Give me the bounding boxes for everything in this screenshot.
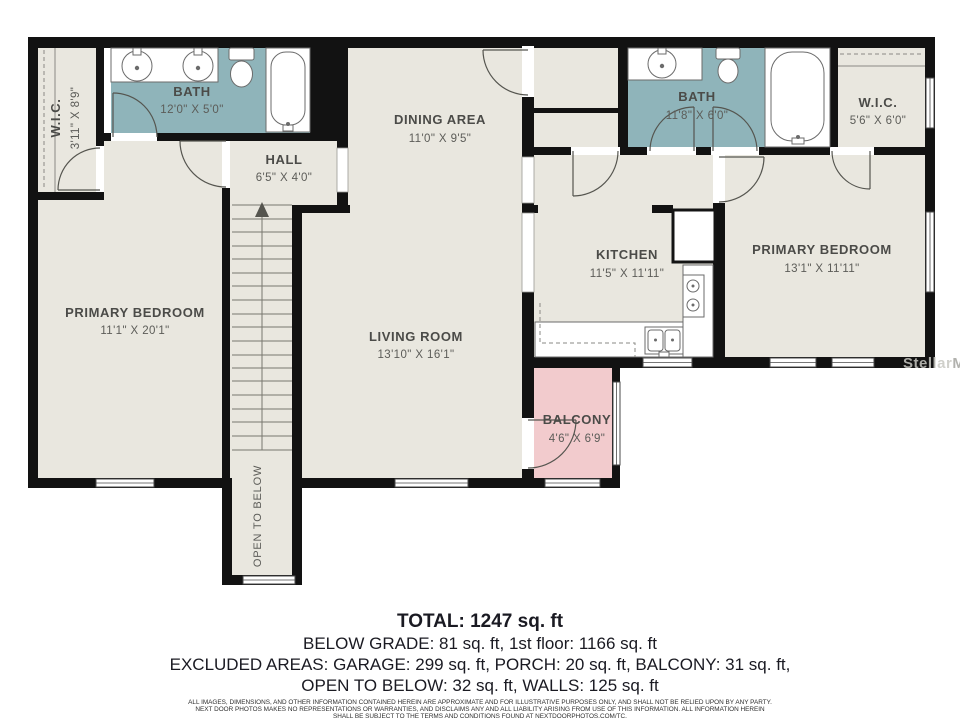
area-summary: TOTAL: 1247 sq. ft BELOW GRADE: 81 sq. f… bbox=[0, 611, 960, 720]
room-dims: 3'11" X 8'9" bbox=[70, 87, 82, 150]
window bbox=[96, 479, 154, 487]
room-dims: 12'0" X 5'0" bbox=[160, 104, 223, 116]
room-dims: 5'6" X 6'0" bbox=[850, 115, 907, 127]
window bbox=[770, 358, 816, 367]
wic1-floor bbox=[38, 48, 96, 192]
below-grade-text: BELOW GRADE: 81 sq. ft, 1st floor: 1166 … bbox=[0, 633, 960, 654]
disclaimer: ALL IMAGES, DIMENSIONS, AND OTHER INFORM… bbox=[0, 699, 960, 720]
room-label: W.I.C. bbox=[859, 95, 898, 110]
room-label: LIVING ROOM bbox=[369, 329, 463, 344]
room-label: DINING AREA bbox=[394, 112, 486, 127]
room-label: BALCONY bbox=[543, 412, 611, 427]
room-dims: 11'1" X 20'1" bbox=[100, 325, 169, 337]
window bbox=[395, 479, 468, 487]
room-label: W.I.C. bbox=[48, 99, 63, 138]
room-dims: 4'6" X 6'9" bbox=[549, 433, 606, 445]
floor-plan-image: W.I.C. 3'11" X 8'9" BATH 12'0" X 5'0" HA… bbox=[0, 0, 960, 720]
room-dims: 13'1" X 11'11" bbox=[784, 263, 859, 275]
toilet-icon bbox=[229, 48, 254, 87]
refrigerator-icon bbox=[673, 210, 715, 262]
open-to-below-label: OPEN TO BELOW bbox=[252, 465, 264, 567]
bedroom1-floor bbox=[38, 200, 222, 478]
disclaimer-line: ALL IMAGES, DIMENSIONS, AND OTHER INFORM… bbox=[0, 699, 960, 706]
open-below-walls-text: OPEN TO BELOW: 32 sq. ft, WALLS: 125 sq.… bbox=[0, 675, 960, 696]
room-label: KITCHEN bbox=[596, 247, 658, 262]
window bbox=[613, 382, 620, 465]
kitchen-sink-icon bbox=[645, 327, 683, 357]
room-dims: 11'8" X 6'0" bbox=[666, 110, 729, 122]
total-area-text: TOTAL: 1247 sq. ft bbox=[0, 611, 960, 633]
room-label: PRIMARY BEDROOM bbox=[752, 242, 892, 257]
closet-a-floor bbox=[534, 48, 618, 108]
closet-b-floor bbox=[534, 113, 618, 147]
bathtub-icon bbox=[266, 48, 310, 132]
window bbox=[643, 358, 692, 367]
hall-dining-cased-opening bbox=[337, 148, 348, 192]
window bbox=[545, 479, 600, 487]
room-label: BATH bbox=[678, 89, 716, 104]
room-label: HALL bbox=[265, 152, 302, 167]
dining-hall2-cased-opening bbox=[522, 157, 534, 203]
room-dims: 13'10" X 16'1" bbox=[378, 349, 455, 361]
bedroom1-alcove-floor bbox=[104, 141, 222, 200]
stellar-mls-watermark: StellarMLS bbox=[903, 355, 960, 372]
living-floor-strip bbox=[302, 213, 348, 478]
room-dims: 11'5" X 11'11" bbox=[590, 268, 664, 280]
window bbox=[832, 358, 874, 367]
toilet-icon bbox=[716, 48, 740, 83]
window bbox=[926, 78, 934, 128]
room-dims: 11'0" X 9'5" bbox=[409, 133, 472, 145]
room-label: BATH bbox=[173, 84, 211, 99]
kitchen-passthrough bbox=[522, 213, 534, 292]
window bbox=[926, 212, 934, 292]
stove-icon bbox=[683, 275, 704, 317]
disclaimer-line: NEXT DOOR PHOTOS MAKES NO REPRESENTATION… bbox=[0, 706, 960, 713]
disclaimer-line: SHALL BE SUBJECT TO THE TERMS AND CONDIT… bbox=[0, 713, 960, 720]
window bbox=[243, 576, 295, 584]
excluded-areas-text: EXCLUDED AREAS: GARAGE: 299 sq. ft, PORC… bbox=[0, 654, 960, 675]
room-dims: 6'5" X 4'0" bbox=[256, 172, 313, 184]
room-label: PRIMARY BEDROOM bbox=[65, 305, 205, 320]
